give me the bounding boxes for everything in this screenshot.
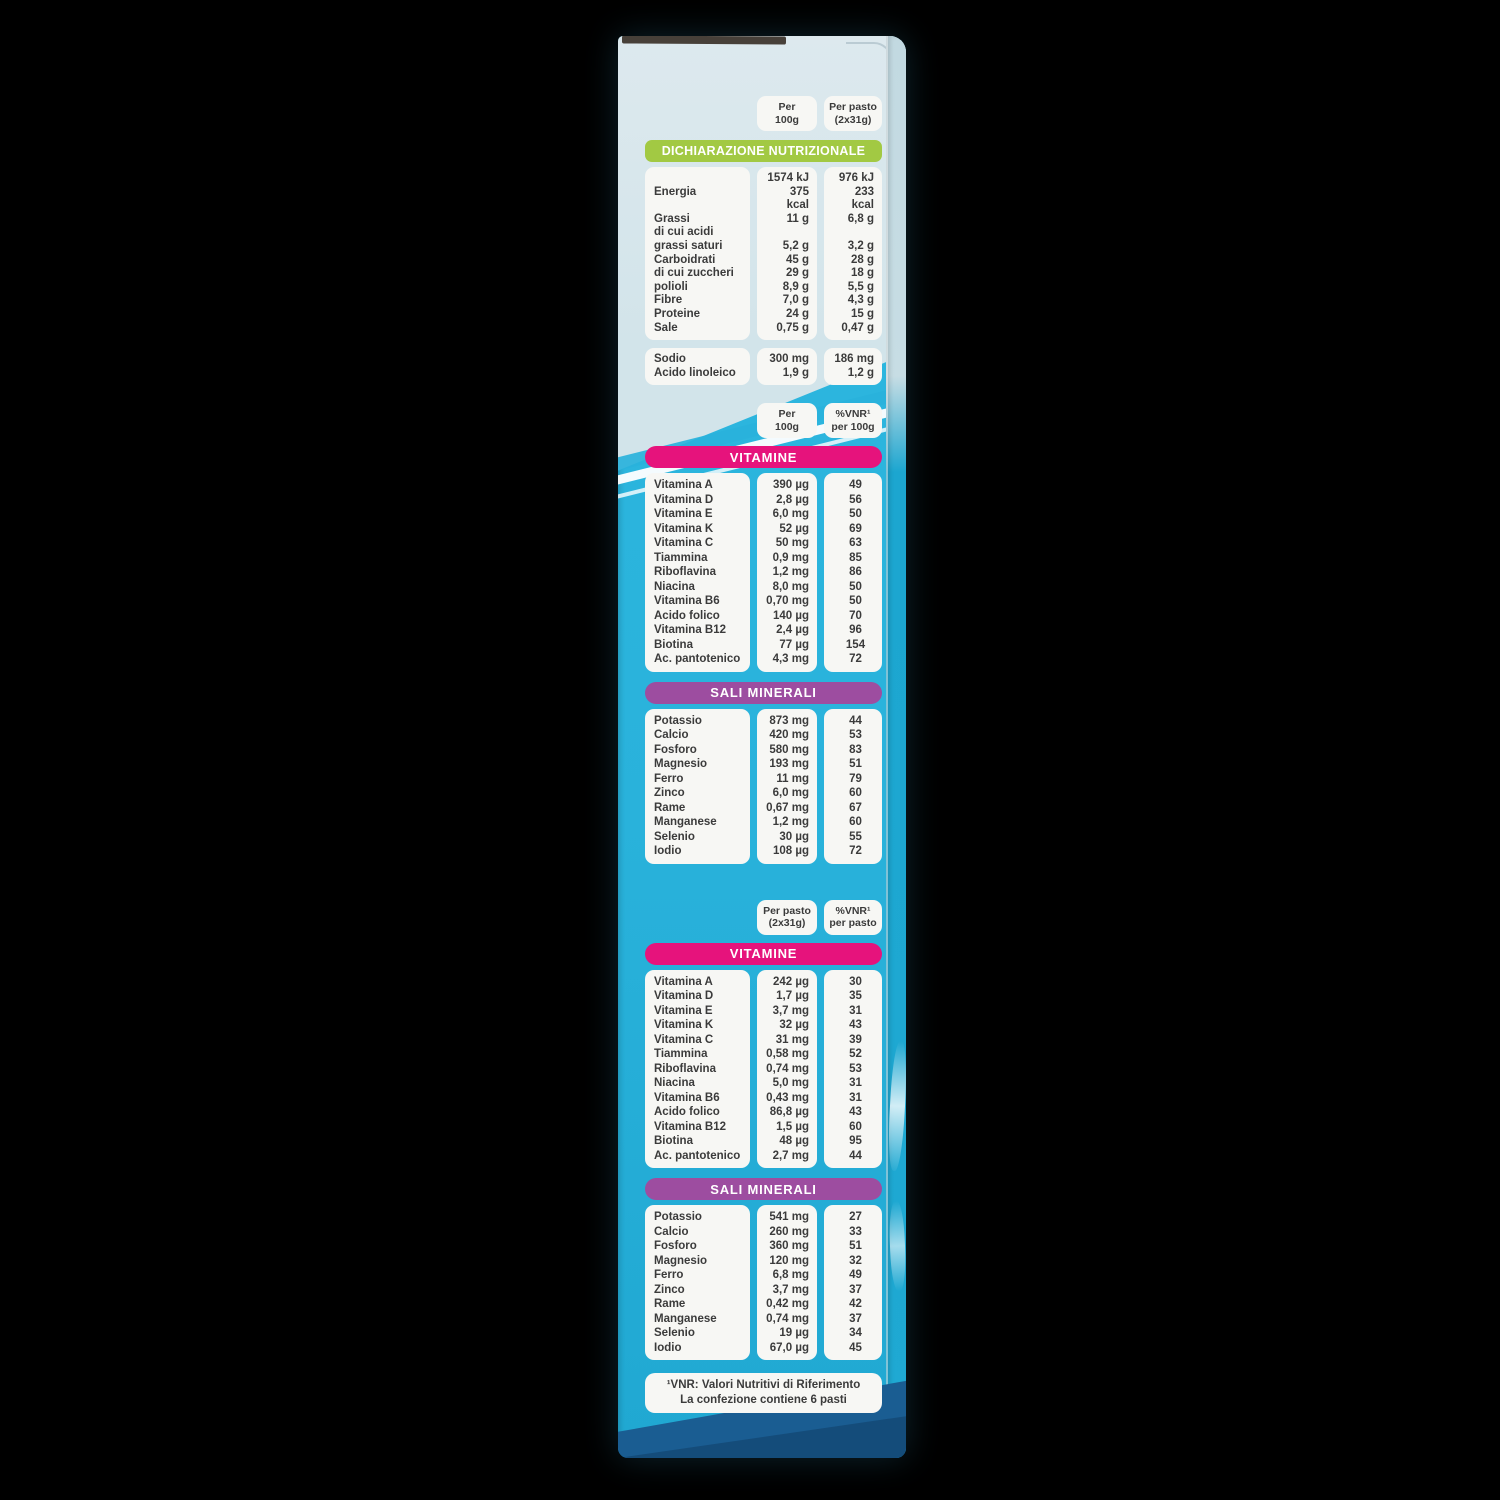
vnr-cell: 52 (824, 1047, 882, 1062)
label-cell: Calcio (645, 1225, 750, 1240)
amount-cell: 873 mg (757, 709, 817, 729)
label-cell: Vitamina B6 (645, 594, 750, 609)
vnr-cell: 44 (824, 709, 882, 729)
minerals-table-per-100g: Potassio873 mg44Calcio420 mg53Fosforo580… (645, 709, 882, 864)
label-cell: Vitamina B6 (645, 1091, 750, 1106)
label-cell: Riboflavina (645, 565, 750, 580)
vnr-cell: 72 (824, 652, 882, 672)
label-cell: di cui zuccheri (645, 267, 750, 281)
amount-cell: 0,43 mg (757, 1091, 817, 1106)
vitamins-table-per-100g: Vitamina A390 µg49Vitamina D2,8 µg56Vita… (645, 473, 882, 672)
label-cell: Biotina (645, 638, 750, 653)
vnr-cell: 31 (824, 1091, 882, 1106)
label-cell: Vitamina B12 (645, 1120, 750, 1135)
label-cell: Niacina (645, 1076, 750, 1091)
column-headers-per-pasto: Per pasto (2x31g) %VNR¹ per pasto (645, 900, 882, 935)
amount-cell: 0,70 mg (757, 594, 817, 609)
per-pasto-cell: 18 g (824, 267, 882, 281)
photo-backdrop: Per 100g Per pasto (2x31g) DICHIARAZIONE… (0, 0, 1500, 1500)
amount-cell: 6,0 mg (757, 507, 817, 522)
amount-cell: 193 mg (757, 757, 817, 772)
per-pasto-cell: 1,2 g (824, 367, 882, 386)
minerals-banner-per-pasto: SALI MINERALI (645, 1178, 882, 1200)
label-cell: Fibre (645, 294, 750, 308)
vitamins-banner-per-pasto: VITAMINE (645, 943, 882, 965)
label-cell: Manganese (645, 1312, 750, 1327)
vnr-cell: 63 (824, 536, 882, 551)
amount-cell: 3,7 mg (757, 1004, 817, 1019)
vnr-cell: 60 (824, 815, 882, 830)
amount-cell: 0,42 mg (757, 1297, 817, 1312)
amount-cell: 50 mg (757, 536, 817, 551)
amount-cell: 0,9 mg (757, 551, 817, 566)
amount-cell: 52 µg (757, 522, 817, 537)
amount-cell: 120 mg (757, 1254, 817, 1269)
per-100g-cell: 300 mg (757, 348, 817, 367)
amount-cell: 360 mg (757, 1239, 817, 1254)
label-cell: Carboidrati (645, 254, 750, 268)
vnr-cell: 69 (824, 522, 882, 537)
label-cell: Selenio (645, 830, 750, 845)
vnr-cell: 37 (824, 1312, 882, 1327)
vnr-cell: 51 (824, 757, 882, 772)
vnr-cell: 31 (824, 1076, 882, 1091)
col-header-vnr-pasto: %VNR¹ per pasto (824, 900, 882, 935)
label-cell: Vitamina K (645, 522, 750, 537)
vnr-cell: 72 (824, 844, 882, 864)
vnr-footnote-line1: ¹VNR: Valori Nutritivi di Riferimento (649, 1378, 878, 1393)
label-cell: Vitamina E (645, 1004, 750, 1019)
per-100g-cell: 24 g (757, 308, 817, 322)
label-cell: Proteine (645, 308, 750, 322)
label-cell: Vitamina K (645, 1018, 750, 1033)
per-100g-cell: 1,9 g (757, 367, 817, 386)
per-100g-cell: 11 g (757, 213, 817, 227)
amount-cell: 2,8 µg (757, 493, 817, 508)
label-cell: Fosforo (645, 743, 750, 758)
col-header-per-pasto: Per pasto (2x31g) (757, 900, 817, 935)
label-cell: Vitamina D (645, 493, 750, 508)
label-cell: Vitamina A (645, 970, 750, 990)
amount-cell: 48 µg (757, 1134, 817, 1149)
per-100g-cell: 1574 kJ375 kcal (757, 167, 817, 213)
amount-cell: 260 mg (757, 1225, 817, 1240)
vnr-cell: 49 (824, 473, 882, 493)
vnr-cell: 39 (824, 1033, 882, 1048)
per-100g-cell: 7,0 g (757, 294, 817, 308)
per-100g-cell: 45 g (757, 254, 817, 268)
label-cell: Sale (645, 322, 750, 341)
per-pasto-cell: 6,8 g (824, 213, 882, 227)
col-header-per-pasto: Per pasto (2x31g) (824, 96, 882, 131)
label-cell: Niacina (645, 580, 750, 595)
per-pasto-cell: 28 g (824, 254, 882, 268)
vnr-cell: 67 (824, 801, 882, 816)
label-cell: Iodio (645, 844, 750, 864)
amount-cell: 580 mg (757, 743, 817, 758)
product-box-side-panel: Per 100g Per pasto (2x31g) DICHIARAZIONE… (618, 36, 906, 1458)
label-cell: Riboflavina (645, 1062, 750, 1077)
label-cell: Zinco (645, 786, 750, 801)
vnr-cell: 53 (824, 728, 882, 743)
label-cell: Acido folico (645, 1105, 750, 1120)
per-pasto-cell: 15 g (824, 308, 882, 322)
vnr-cell: 60 (824, 1120, 882, 1135)
amount-cell: 5,0 mg (757, 1076, 817, 1091)
per-pasto-cell: 5,5 g (824, 281, 882, 295)
col-header-vnr-100g: %VNR¹ per 100g (824, 403, 882, 438)
vnr-cell: 154 (824, 638, 882, 653)
label-cell: Ferro (645, 772, 750, 787)
label-cell: Vitamina B12 (645, 623, 750, 638)
label-cell: Tiammina (645, 1047, 750, 1062)
label-cell: Ac. pantotenico (645, 652, 750, 672)
minerals-table-per-pasto: Potassio541 mg27Calcio260 mg33Fosforo360… (645, 1205, 882, 1360)
column-headers-per-100g: Per 100g %VNR¹ per 100g (645, 403, 882, 438)
amount-cell: 242 µg (757, 970, 817, 990)
label-cell: Vitamina C (645, 1033, 750, 1048)
vnr-cell: 51 (824, 1239, 882, 1254)
amount-cell: 19 µg (757, 1326, 817, 1341)
vitamins-table-per-pasto: Vitamina A242 µg30Vitamina D1,7 µg35Vita… (645, 970, 882, 1169)
amount-cell: 1,2 mg (757, 565, 817, 580)
amount-cell: 1,5 µg (757, 1120, 817, 1135)
nutrition-declaration-banner: DICHIARAZIONE NUTRIZIONALE (645, 140, 882, 162)
per-pasto-cell: 186 mg (824, 348, 882, 367)
per-100g-cell: 8,9 g (757, 281, 817, 295)
amount-cell: 31 mg (757, 1033, 817, 1048)
vnr-cell: 42 (824, 1297, 882, 1312)
per-pasto-cell: 0,47 g (824, 322, 882, 341)
amount-cell: 11 mg (757, 772, 817, 787)
vnr-cell: 50 (824, 594, 882, 609)
per-100g-cell: 0,75 g (757, 322, 817, 341)
label-cell: Ac. pantotenico (645, 1149, 750, 1169)
label-cell: Rame (645, 801, 750, 816)
label-cell: Potassio (645, 709, 750, 729)
vnr-cell: 53 (824, 1062, 882, 1077)
amount-cell: 0,58 mg (757, 1047, 817, 1062)
amount-cell: 32 µg (757, 1018, 817, 1033)
label-cell: Vitamina C (645, 536, 750, 551)
label-cell: Potassio (645, 1205, 750, 1225)
nutrition-label-content: Per 100g Per pasto (2x31g) DICHIARAZIONE… (645, 36, 882, 1413)
label-cell: Fosforo (645, 1239, 750, 1254)
per-pasto-cell: 976 kJ233 kcal (824, 167, 882, 213)
label-cell: Vitamina D (645, 989, 750, 1004)
amount-cell: 2,7 mg (757, 1149, 817, 1169)
vnr-cell: 95 (824, 1134, 882, 1149)
amount-cell: 2,4 µg (757, 623, 817, 638)
vnr-cell: 33 (824, 1225, 882, 1240)
label-cell: Magnesio (645, 1254, 750, 1269)
amount-cell: 420 mg (757, 728, 817, 743)
label-cell: Zinco (645, 1283, 750, 1298)
amount-cell: 86,8 µg (757, 1105, 817, 1120)
vnr-footnote: ¹VNR: Valori Nutritivi di Riferimento La… (645, 1373, 882, 1413)
vnr-cell: 44 (824, 1149, 882, 1169)
per-100g-cell: 5,2 g (757, 226, 817, 253)
vnr-cell: 32 (824, 1254, 882, 1269)
vnr-cell: 37 (824, 1283, 882, 1298)
vnr-cell: 79 (824, 772, 882, 787)
vnr-cell: 86 (824, 565, 882, 580)
amount-cell: 108 µg (757, 844, 817, 864)
amount-cell: 140 µg (757, 609, 817, 624)
vnr-cell: 43 (824, 1105, 882, 1120)
label-cell: Selenio (645, 1326, 750, 1341)
label-cell: Iodio (645, 1341, 750, 1361)
amount-cell: 1,7 µg (757, 989, 817, 1004)
label-cell: Grassi (645, 213, 750, 227)
amount-cell: 8,0 mg (757, 580, 817, 595)
amount-cell: 4,3 mg (757, 652, 817, 672)
label-cell: Energia (645, 167, 750, 213)
vnr-cell: 83 (824, 743, 882, 758)
amount-cell: 0,74 mg (757, 1062, 817, 1077)
vnr-cell: 45 (824, 1341, 882, 1361)
amount-cell: 6,0 mg (757, 786, 817, 801)
vnr-cell: 35 (824, 989, 882, 1004)
vnr-cell: 96 (824, 623, 882, 638)
col-header-per-100g: Per 100g (757, 96, 817, 131)
vnr-cell: 56 (824, 493, 882, 508)
label-cell: polioli (645, 281, 750, 295)
vnr-cell: 50 (824, 580, 882, 595)
label-cell: Biotina (645, 1134, 750, 1149)
label-cell: Manganese (645, 815, 750, 830)
label-cell: Sodio (645, 348, 750, 367)
minerals-banner-per-100g: SALI MINERALI (645, 682, 882, 704)
label-cell: Acido folico (645, 609, 750, 624)
vnr-cell: 49 (824, 1268, 882, 1283)
label-cell: Acido linoleico (645, 367, 750, 386)
col-header-per-100g: Per 100g (757, 403, 817, 438)
label-cell: Tiammina (645, 551, 750, 566)
label-cell: Magnesio (645, 757, 750, 772)
sodium-linoleic-table: Sodio300 mg186 mgAcido linoleico1,9 g1,2… (645, 348, 882, 385)
label-cell: Ferro (645, 1268, 750, 1283)
amount-cell: 77 µg (757, 638, 817, 653)
per-pasto-cell: 4,3 g (824, 294, 882, 308)
amount-cell: 1,2 mg (757, 815, 817, 830)
label-cell: Vitamina A (645, 473, 750, 493)
amount-cell: 6,8 mg (757, 1268, 817, 1283)
per-pasto-cell: 3,2 g (824, 226, 882, 253)
vnr-cell: 43 (824, 1018, 882, 1033)
vitamins-banner-per-100g: VITAMINE (645, 446, 882, 468)
vnr-cell: 85 (824, 551, 882, 566)
amount-cell: 67,0 µg (757, 1341, 817, 1361)
label-cell: Vitamina E (645, 507, 750, 522)
amount-cell: 30 µg (757, 830, 817, 845)
label-cell: di cui acidigrassi saturi (645, 226, 750, 253)
amount-cell: 0,74 mg (757, 1312, 817, 1327)
vnr-cell: 55 (824, 830, 882, 845)
label-cell: Rame (645, 1297, 750, 1312)
vnr-cell: 50 (824, 507, 882, 522)
per-100g-cell: 29 g (757, 267, 817, 281)
vnr-cell: 31 (824, 1004, 882, 1019)
vnr-cell: 30 (824, 970, 882, 990)
vnr-cell: 34 (824, 1326, 882, 1341)
amount-cell: 390 µg (757, 473, 817, 493)
vnr-cell: 60 (824, 786, 882, 801)
vnr-cell: 70 (824, 609, 882, 624)
label-cell: Calcio (645, 728, 750, 743)
nutrition-declaration-table: Energia1574 kJ375 kcal976 kJ233 kcalGras… (645, 167, 882, 340)
vnr-cell: 27 (824, 1205, 882, 1225)
column-headers-declaration: Per 100g Per pasto (2x31g) (645, 96, 882, 131)
vnr-footnote-line2: La confezione contiene 6 pasti (649, 1393, 878, 1408)
amount-cell: 3,7 mg (757, 1283, 817, 1298)
amount-cell: 541 mg (757, 1205, 817, 1225)
amount-cell: 0,67 mg (757, 801, 817, 816)
